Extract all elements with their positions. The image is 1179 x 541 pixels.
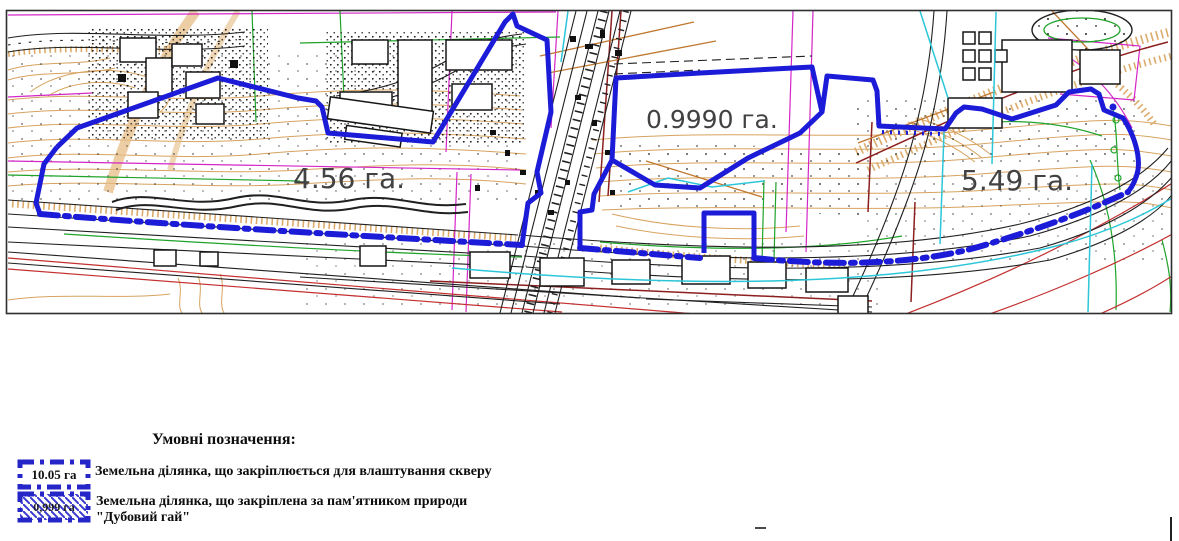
- scan-artifact-edge: [1170, 517, 1172, 541]
- map-canvas: 4.56 га. 0.9990 га. 5.49 га.: [0, 0, 1179, 541]
- area-label-monument: 0.9990 га.: [646, 105, 778, 134]
- area-label-west: 4.56 га.: [293, 162, 405, 195]
- legend-symbol-dubovyi-hai: 0,999 га: [16, 490, 92, 524]
- plan-page: 4.56 га. 0.9990 га. 5.49 га. Умовні позн…: [0, 0, 1179, 541]
- legend-title: Умовні позначення:: [152, 431, 296, 449]
- legend-item-monument-line2: "Дубовий гай": [96, 510, 566, 526]
- legend-item-sker-label: Земельна ділянка, що закріплюється для в…: [95, 464, 565, 480]
- legend-symbol-sker-label: 10.05 га: [32, 467, 77, 482]
- area-label-east: 5.49 га.: [961, 164, 1073, 197]
- legend-symbol-dubovyi-hai-label: 0,999 га: [33, 500, 74, 514]
- scan-artifact: [755, 527, 766, 529]
- legend-item-monument-line1: Земельна ділянка, що закріплена за пам'я…: [96, 494, 566, 510]
- legend-symbol-sker: 10.05 га: [16, 458, 92, 491]
